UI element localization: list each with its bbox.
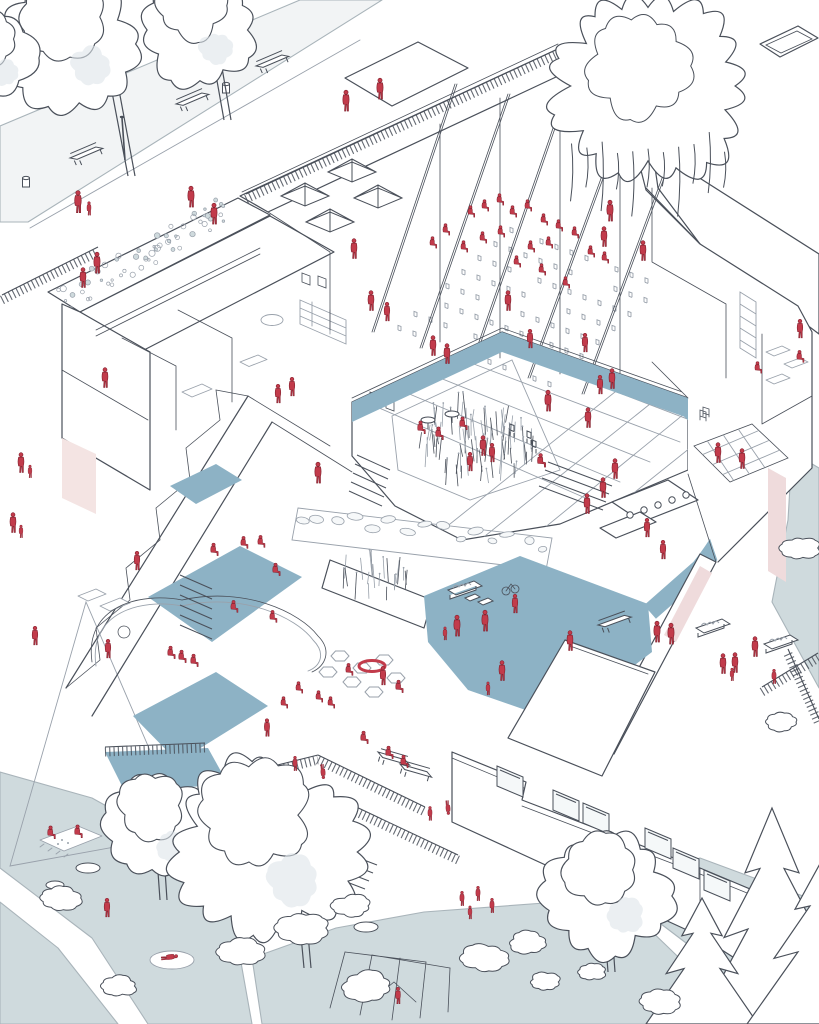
person-figure (296, 682, 303, 694)
person-figure (607, 200, 613, 221)
person-figure (258, 535, 265, 547)
person-figure (752, 637, 758, 657)
person-figure (134, 551, 139, 570)
axonometric-illustration (0, 0, 819, 1024)
person-figure (538, 454, 546, 468)
person-figure (546, 237, 553, 249)
person-figure (315, 462, 321, 483)
person-figure (443, 224, 450, 236)
person-figure (191, 654, 198, 666)
person-figure (328, 697, 335, 709)
person-figure (351, 239, 357, 259)
person-figure (563, 277, 570, 289)
person-figure (720, 654, 726, 674)
person-figure (588, 246, 595, 258)
person-figure (467, 452, 472, 471)
lower-planter (322, 560, 432, 628)
person-figure (612, 459, 618, 479)
person-figure (489, 443, 494, 462)
person-figure (730, 668, 734, 681)
play-mat (150, 951, 194, 969)
person-figure (510, 206, 517, 218)
glass-roof-small (345, 42, 468, 106)
person-figure (461, 241, 468, 253)
brick-wall (300, 300, 346, 344)
planter-box (696, 619, 730, 637)
round-table (261, 315, 283, 326)
trash-bin (23, 176, 30, 187)
kitchen-counter (612, 480, 698, 522)
planter-box (764, 635, 798, 653)
person-figure (428, 806, 432, 820)
person-figure (460, 891, 464, 905)
person-figure (556, 220, 563, 232)
person-figure (289, 377, 294, 396)
person-figure (368, 291, 374, 311)
person-figure (644, 518, 649, 537)
person-figure (270, 610, 277, 622)
workshop-equipment (78, 589, 130, 611)
person-figure (468, 206, 475, 218)
person-figure (380, 666, 385, 685)
person-figure (105, 639, 110, 658)
stone-texture (296, 512, 547, 553)
person-figure (75, 191, 81, 213)
skylight-pyramid (306, 209, 354, 232)
person-figure (505, 291, 511, 311)
floor-cushions (319, 651, 405, 697)
person-figure (514, 256, 521, 268)
person-figure (525, 200, 532, 212)
person-figure (476, 886, 480, 900)
person-figure (445, 800, 450, 814)
person-figure (600, 478, 606, 498)
skylight-pyramid (354, 185, 402, 208)
blue-terrace-mid (148, 546, 302, 642)
person-figure (539, 264, 546, 276)
person-figure (18, 453, 24, 473)
person-figure (480, 232, 487, 244)
person-figure (19, 525, 23, 538)
person-figure (241, 536, 248, 548)
person-figure (275, 384, 280, 403)
person-figure (179, 650, 186, 662)
person-figure (430, 336, 436, 356)
roof-walkway (240, 48, 588, 212)
person-figure (281, 697, 288, 709)
person-figure (498, 226, 505, 238)
person-figure (28, 465, 32, 478)
person-figure (10, 513, 16, 533)
person-figure (264, 719, 269, 737)
person-figure (602, 252, 609, 264)
person-figure (545, 390, 551, 411)
person-figure (572, 227, 579, 239)
person-figure (582, 333, 587, 352)
person-figure (211, 543, 218, 555)
person-figure (316, 691, 323, 703)
person-figure (772, 669, 776, 683)
person-figure (541, 214, 548, 226)
person-figure (87, 202, 91, 216)
skylight-box-topright (760, 26, 818, 57)
person-figure (343, 90, 349, 111)
roof-walkway-rail-top (242, 44, 558, 192)
blue-terrace-upper (170, 464, 242, 504)
desk (182, 384, 212, 397)
person-figure (601, 227, 607, 247)
person-figure (528, 241, 535, 253)
person-figure (168, 646, 175, 658)
person-figure (384, 302, 389, 321)
person-figure (188, 186, 194, 207)
person-figure (361, 731, 368, 743)
person-figure (436, 427, 444, 440)
person-figure (430, 237, 437, 249)
person-figure (32, 626, 37, 645)
desk (240, 355, 267, 367)
cable-wheel (118, 626, 130, 638)
person-figure (482, 200, 489, 212)
person-figure (660, 540, 665, 559)
person-figure (640, 241, 646, 261)
pink-facade-panel (768, 468, 786, 582)
person-figure (585, 408, 591, 428)
person-figure (597, 375, 602, 394)
person-figure (377, 78, 383, 99)
person-figure (584, 494, 590, 514)
left-wing-roof (80, 216, 334, 350)
person-figure (346, 663, 353, 675)
walkway-blue-left (352, 332, 502, 422)
